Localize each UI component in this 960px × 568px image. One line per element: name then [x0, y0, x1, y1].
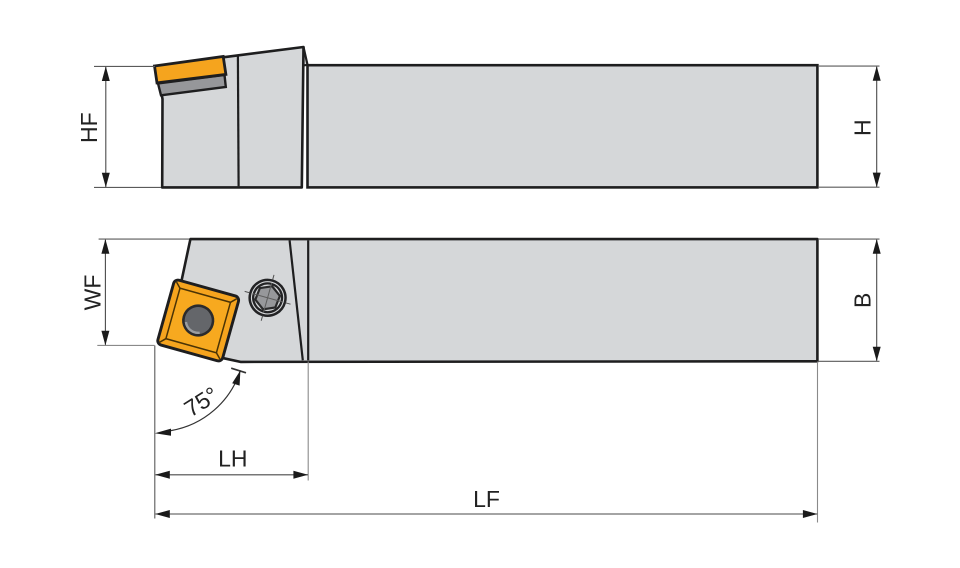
svg-text:WF: WF	[79, 275, 105, 311]
svg-text:HF: HF	[76, 112, 102, 143]
svg-text:LF: LF	[473, 486, 500, 512]
svg-text:LH: LH	[218, 446, 247, 472]
svg-text:B: B	[850, 293, 876, 308]
svg-text:H: H	[849, 119, 875, 136]
